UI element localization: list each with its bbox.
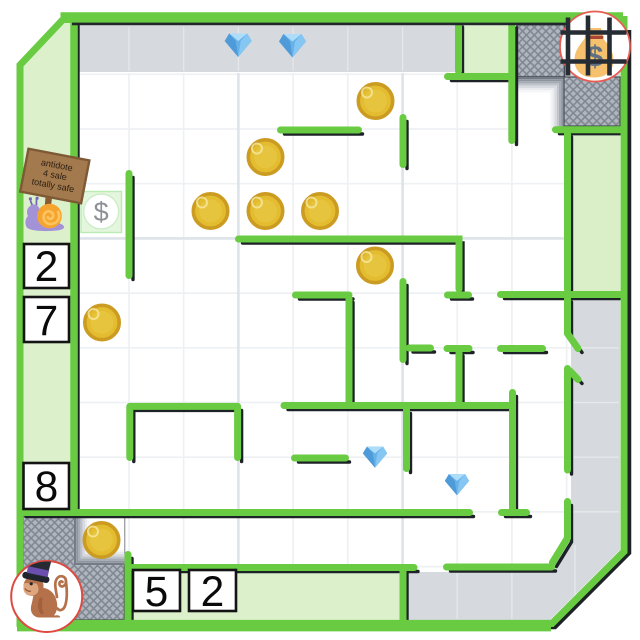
svg-text:7: 7	[35, 298, 59, 345]
svg-text:8: 8	[35, 464, 59, 511]
svg-text:2: 2	[201, 569, 225, 616]
svg-text:5: 5	[145, 569, 169, 616]
svg-text:2: 2	[35, 244, 59, 291]
svg-text:$: $	[94, 197, 109, 227]
